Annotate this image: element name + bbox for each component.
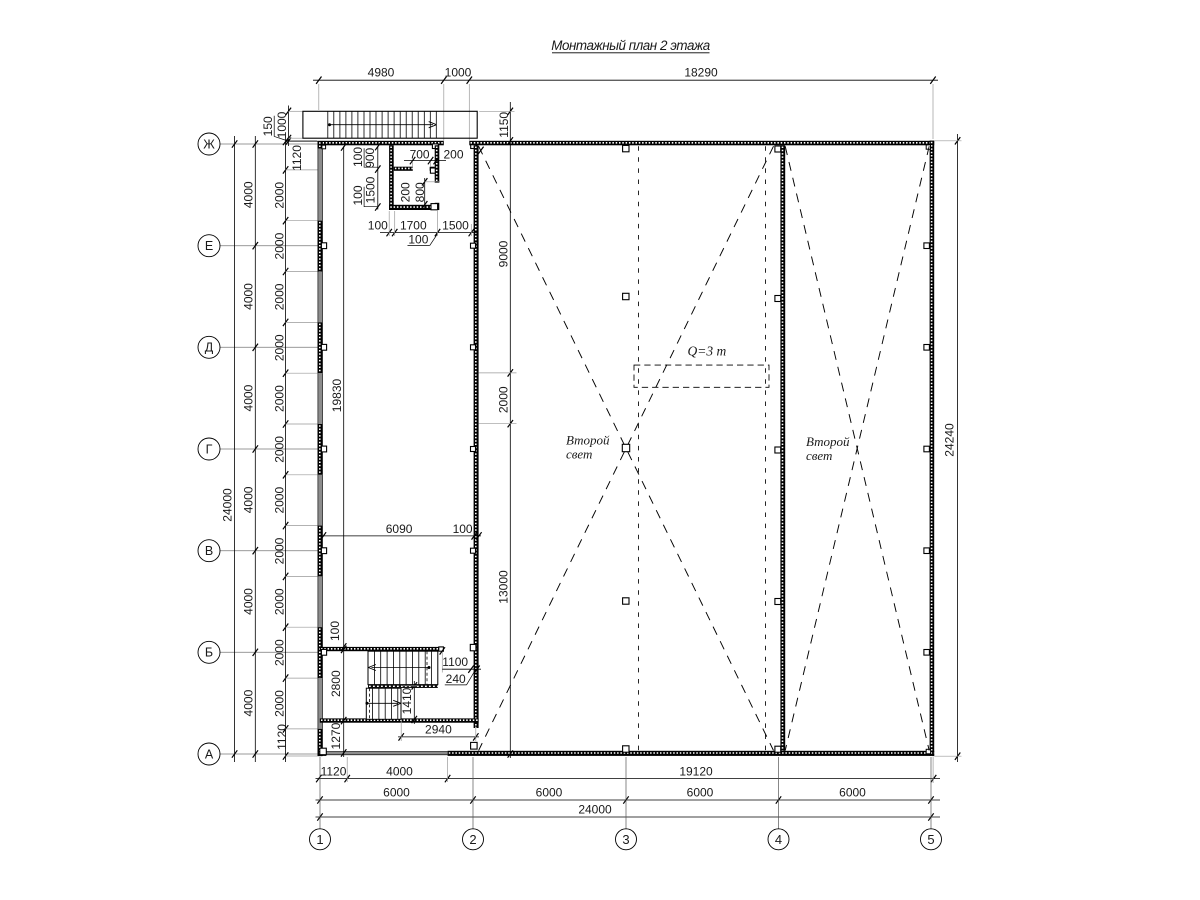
svg-text:4000: 4000 [242, 689, 256, 716]
svg-text:1500: 1500 [442, 218, 469, 232]
svg-text:4000: 4000 [242, 486, 256, 513]
svg-text:700: 700 [410, 148, 430, 162]
svg-text:свет: свет [566, 447, 592, 462]
svg-text:2: 2 [469, 832, 476, 847]
svg-text:100: 100 [453, 522, 473, 536]
svg-text:Г: Г [206, 442, 213, 456]
svg-text:2000: 2000 [273, 639, 287, 666]
svg-text:2000: 2000 [273, 690, 287, 717]
svg-text:2940: 2940 [425, 723, 452, 737]
svg-text:150: 150 [261, 116, 275, 136]
svg-text:2000: 2000 [497, 386, 511, 413]
svg-text:800: 800 [413, 182, 427, 202]
svg-text:2000: 2000 [273, 537, 287, 564]
svg-text:1000: 1000 [445, 66, 472, 80]
svg-text:5: 5 [927, 832, 934, 847]
svg-text:1: 1 [316, 832, 323, 847]
svg-text:1500: 1500 [363, 176, 377, 203]
svg-text:1150: 1150 [497, 112, 511, 138]
svg-text:240: 240 [446, 672, 466, 686]
svg-text:2000: 2000 [273, 385, 287, 412]
svg-text:1120: 1120 [290, 145, 304, 171]
svg-text:1120: 1120 [275, 724, 289, 750]
svg-text:6000: 6000 [839, 786, 866, 800]
svg-text:9000: 9000 [497, 240, 511, 267]
svg-text:Е: Е [205, 239, 213, 253]
svg-text:24000: 24000 [578, 803, 612, 817]
svg-text:24240: 24240 [943, 423, 957, 457]
svg-text:13000: 13000 [497, 570, 511, 604]
svg-text:900: 900 [363, 147, 377, 167]
svg-text:18290: 18290 [684, 66, 718, 80]
svg-text:200: 200 [444, 148, 464, 162]
svg-text:Монтажный план 2 этажа: Монтажный план 2 этажа [551, 38, 709, 53]
svg-text:2000: 2000 [273, 283, 287, 310]
svg-text:Q=3 т: Q=3 т [688, 344, 727, 359]
svg-text:4000: 4000 [242, 283, 256, 310]
svg-text:1700: 1700 [400, 218, 427, 232]
svg-text:В: В [205, 544, 213, 558]
svg-text:1120: 1120 [321, 764, 347, 778]
svg-text:3: 3 [622, 832, 629, 847]
svg-text:19830: 19830 [330, 378, 344, 412]
svg-text:200: 200 [399, 182, 413, 202]
svg-text:А: А [205, 747, 214, 761]
svg-text:6000: 6000 [383, 786, 410, 800]
svg-text:24000: 24000 [221, 488, 235, 522]
svg-text:2000: 2000 [273, 487, 287, 514]
svg-text:100: 100 [408, 233, 428, 247]
svg-text:свет: свет [806, 448, 832, 463]
svg-text:4980: 4980 [368, 66, 395, 80]
svg-text:4000: 4000 [242, 384, 256, 411]
svg-text:Б: Б [205, 646, 213, 660]
svg-text:4000: 4000 [242, 588, 256, 615]
svg-text:6090: 6090 [386, 522, 413, 536]
svg-text:2000: 2000 [273, 232, 287, 259]
svg-text:1410: 1410 [400, 687, 414, 714]
svg-text:4: 4 [775, 832, 782, 847]
svg-text:1270: 1270 [329, 722, 343, 749]
svg-text:1100: 1100 [442, 655, 468, 669]
svg-text:100: 100 [328, 621, 342, 641]
svg-text:2000: 2000 [273, 334, 287, 361]
svg-text:Ж: Ж [203, 137, 215, 151]
svg-text:2000: 2000 [273, 182, 287, 209]
svg-text:100: 100 [368, 218, 388, 232]
svg-text:4000: 4000 [242, 181, 256, 208]
svg-text:19120: 19120 [679, 764, 713, 778]
svg-text:Второй: Второй [566, 433, 610, 448]
svg-text:2800: 2800 [329, 670, 343, 697]
svg-text:1000: 1000 [275, 111, 289, 138]
svg-text:6000: 6000 [536, 786, 563, 800]
svg-text:Д: Д [205, 341, 214, 355]
svg-text:4000: 4000 [386, 764, 413, 778]
svg-text:Второй: Второй [806, 434, 850, 449]
svg-text:6000: 6000 [687, 786, 714, 800]
svg-text:2000: 2000 [273, 436, 287, 463]
svg-text:2000: 2000 [273, 588, 287, 615]
